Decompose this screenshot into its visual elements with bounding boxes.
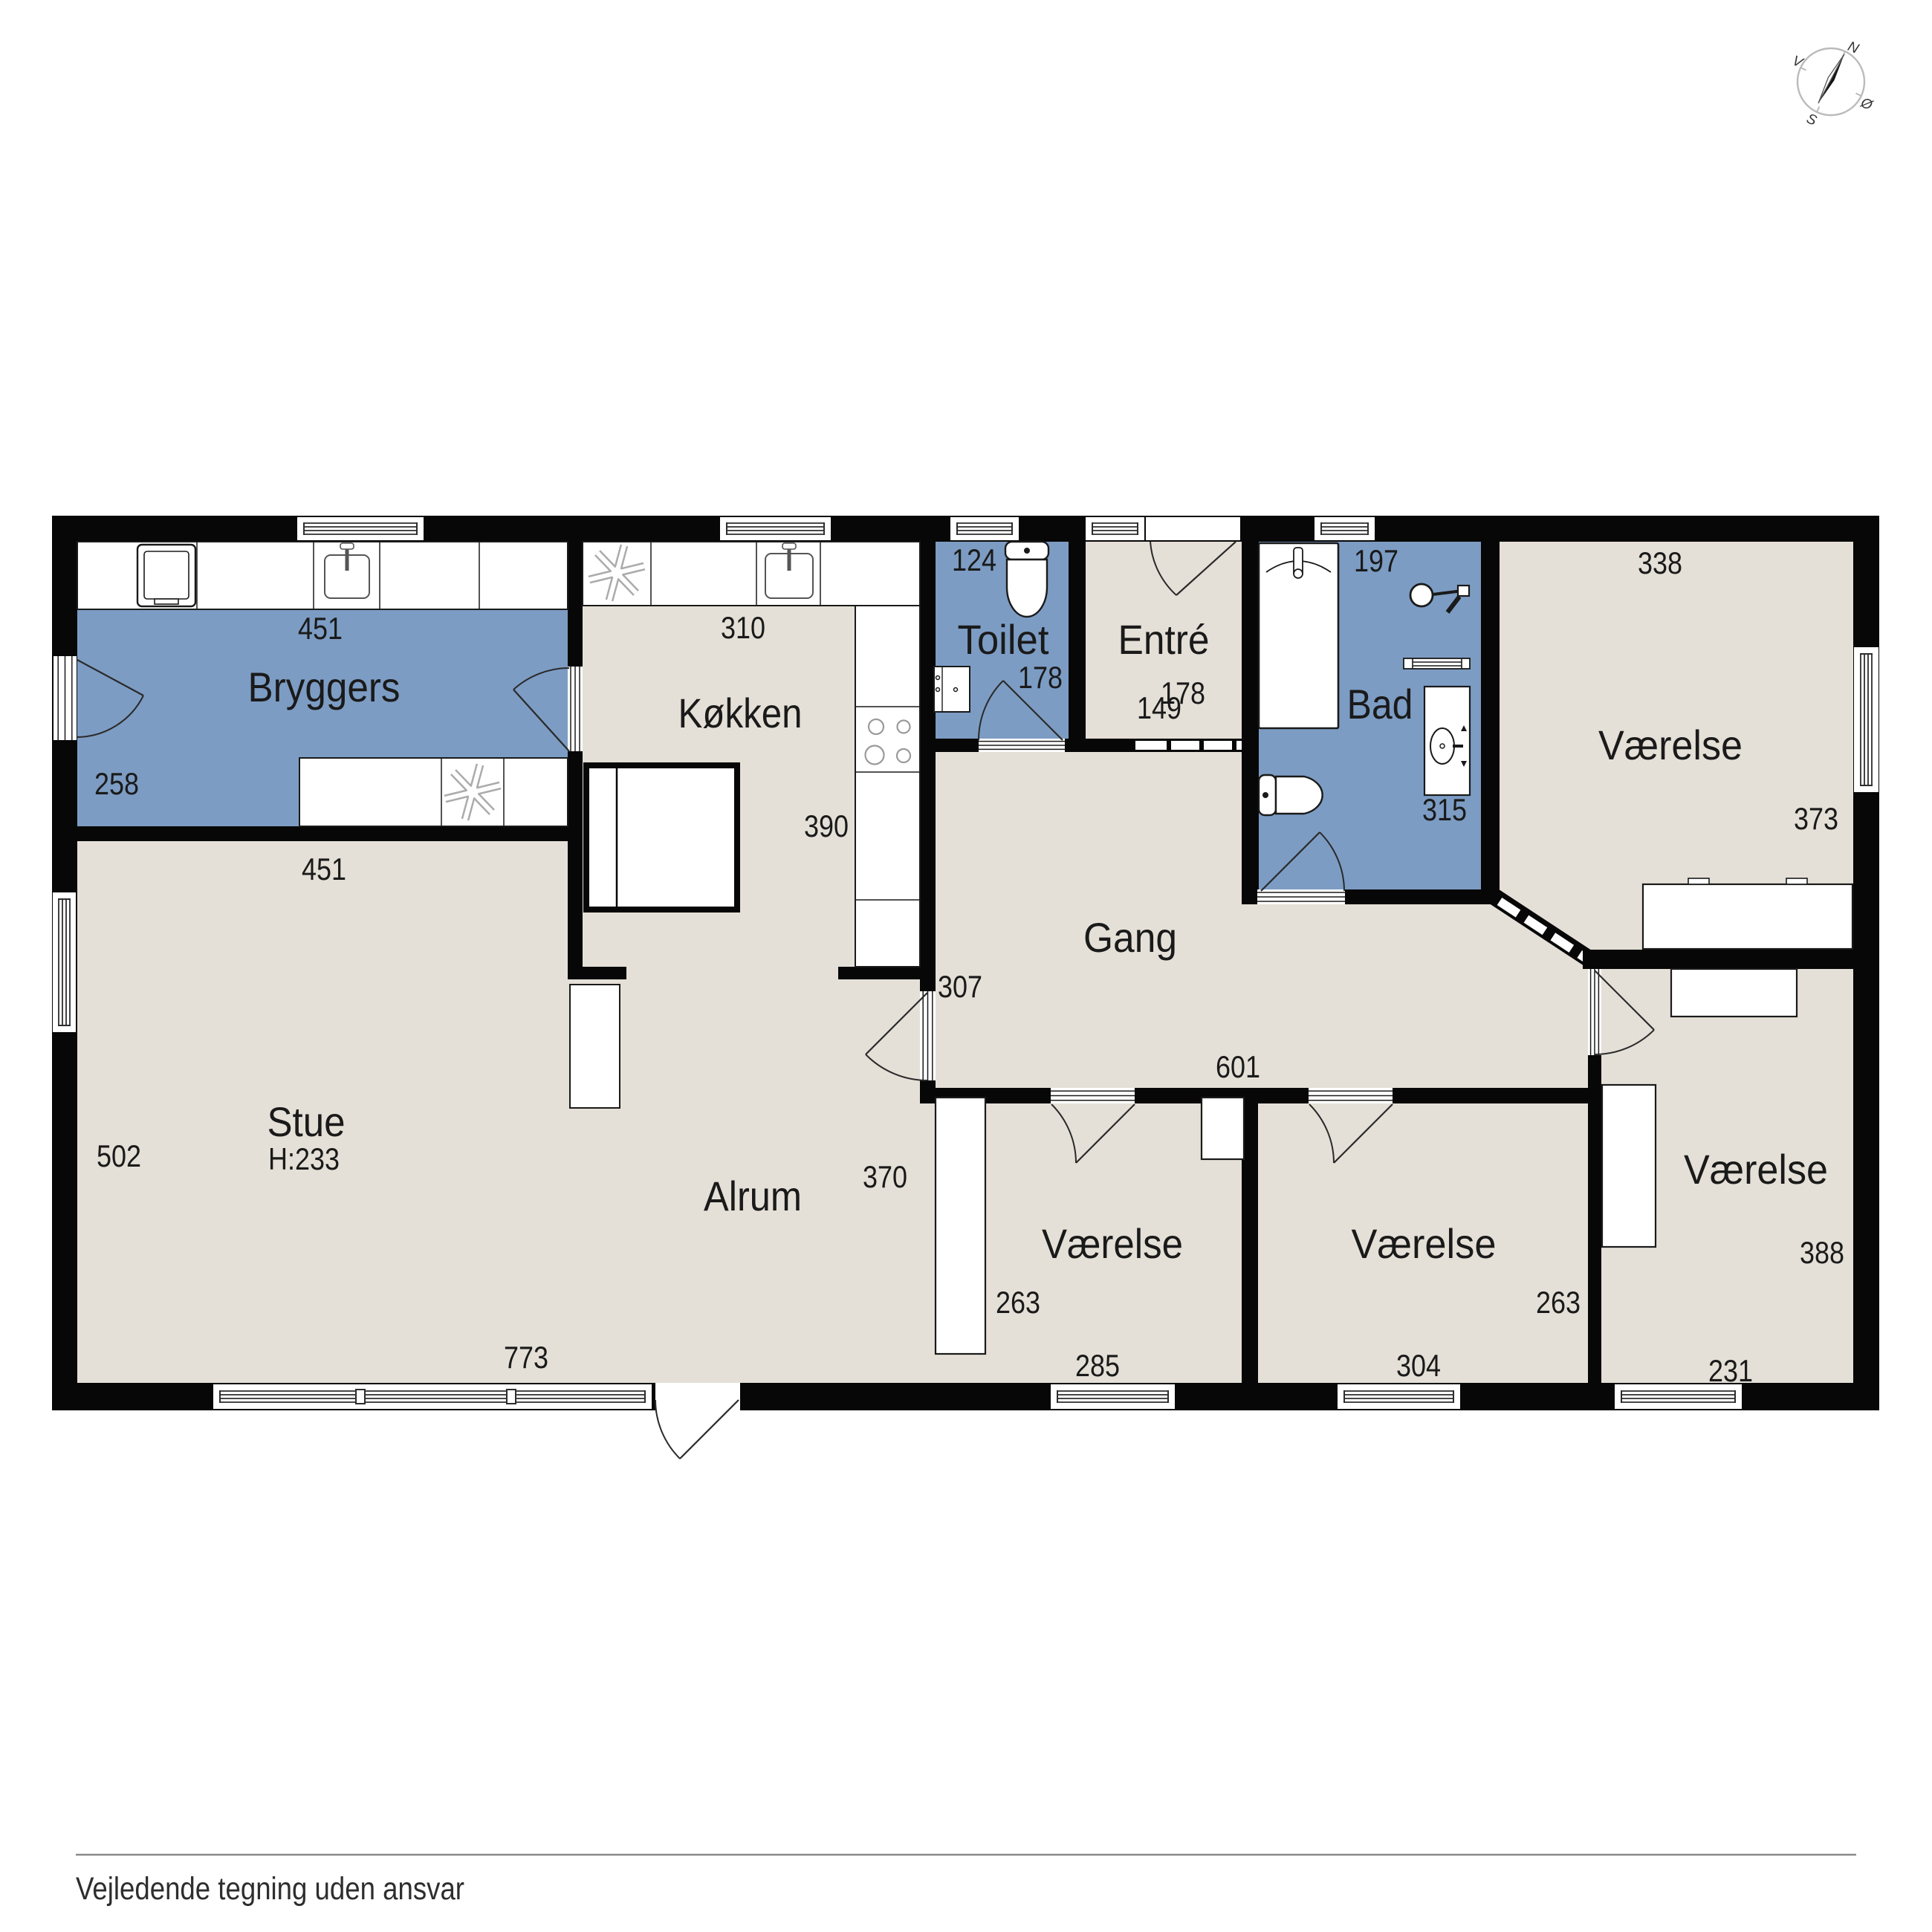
- svg-text:307: 307: [938, 969, 982, 1004]
- svg-text:Bad: Bad: [1347, 681, 1413, 727]
- svg-text:Værelse: Værelse: [1598, 722, 1743, 768]
- svg-text:178: 178: [1018, 660, 1063, 695]
- svg-text:Værelse: Værelse: [1684, 1146, 1828, 1193]
- svg-text:Toilet: Toilet: [958, 616, 1049, 663]
- svg-text:388: 388: [1800, 1235, 1844, 1270]
- svg-text:Køkken: Køkken: [678, 690, 803, 736]
- svg-text:338: 338: [1638, 545, 1682, 580]
- svg-text:Bryggers: Bryggers: [248, 664, 401, 710]
- svg-text:370: 370: [863, 1159, 907, 1194]
- svg-text:Alrum: Alrum: [704, 1173, 802, 1219]
- svg-text:601: 601: [1216, 1049, 1260, 1084]
- svg-text:Stue: Stue: [268, 1098, 346, 1145]
- svg-text:H:233: H:233: [268, 1141, 340, 1176]
- svg-text:773: 773: [504, 1340, 548, 1375]
- svg-text:197: 197: [1354, 543, 1398, 578]
- svg-text:315: 315: [1422, 792, 1467, 827]
- svg-text:390: 390: [804, 808, 849, 843]
- svg-text:Vejledende tegning uden ansvar: Vejledende tegning uden ansvar: [76, 1871, 464, 1907]
- svg-text:124: 124: [952, 542, 996, 577]
- svg-text:258: 258: [94, 766, 139, 801]
- svg-text:Værelse: Værelse: [1352, 1220, 1497, 1267]
- svg-text:285: 285: [1075, 1348, 1120, 1383]
- svg-text:Værelse: Værelse: [1042, 1220, 1183, 1267]
- svg-text:502: 502: [97, 1138, 141, 1173]
- svg-text:263: 263: [1536, 1285, 1581, 1320]
- svg-text:231: 231: [1708, 1353, 1753, 1388]
- svg-text:263: 263: [996, 1285, 1040, 1320]
- svg-text:451: 451: [302, 852, 346, 886]
- svg-text:310: 310: [721, 610, 765, 645]
- svg-text:Gang: Gang: [1083, 914, 1177, 961]
- svg-text:373: 373: [1794, 801, 1838, 836]
- svg-text:304: 304: [1396, 1348, 1441, 1383]
- svg-text:451: 451: [298, 611, 343, 646]
- svg-text:149: 149: [1137, 690, 1181, 725]
- svg-text:Entré: Entré: [1118, 616, 1210, 663]
